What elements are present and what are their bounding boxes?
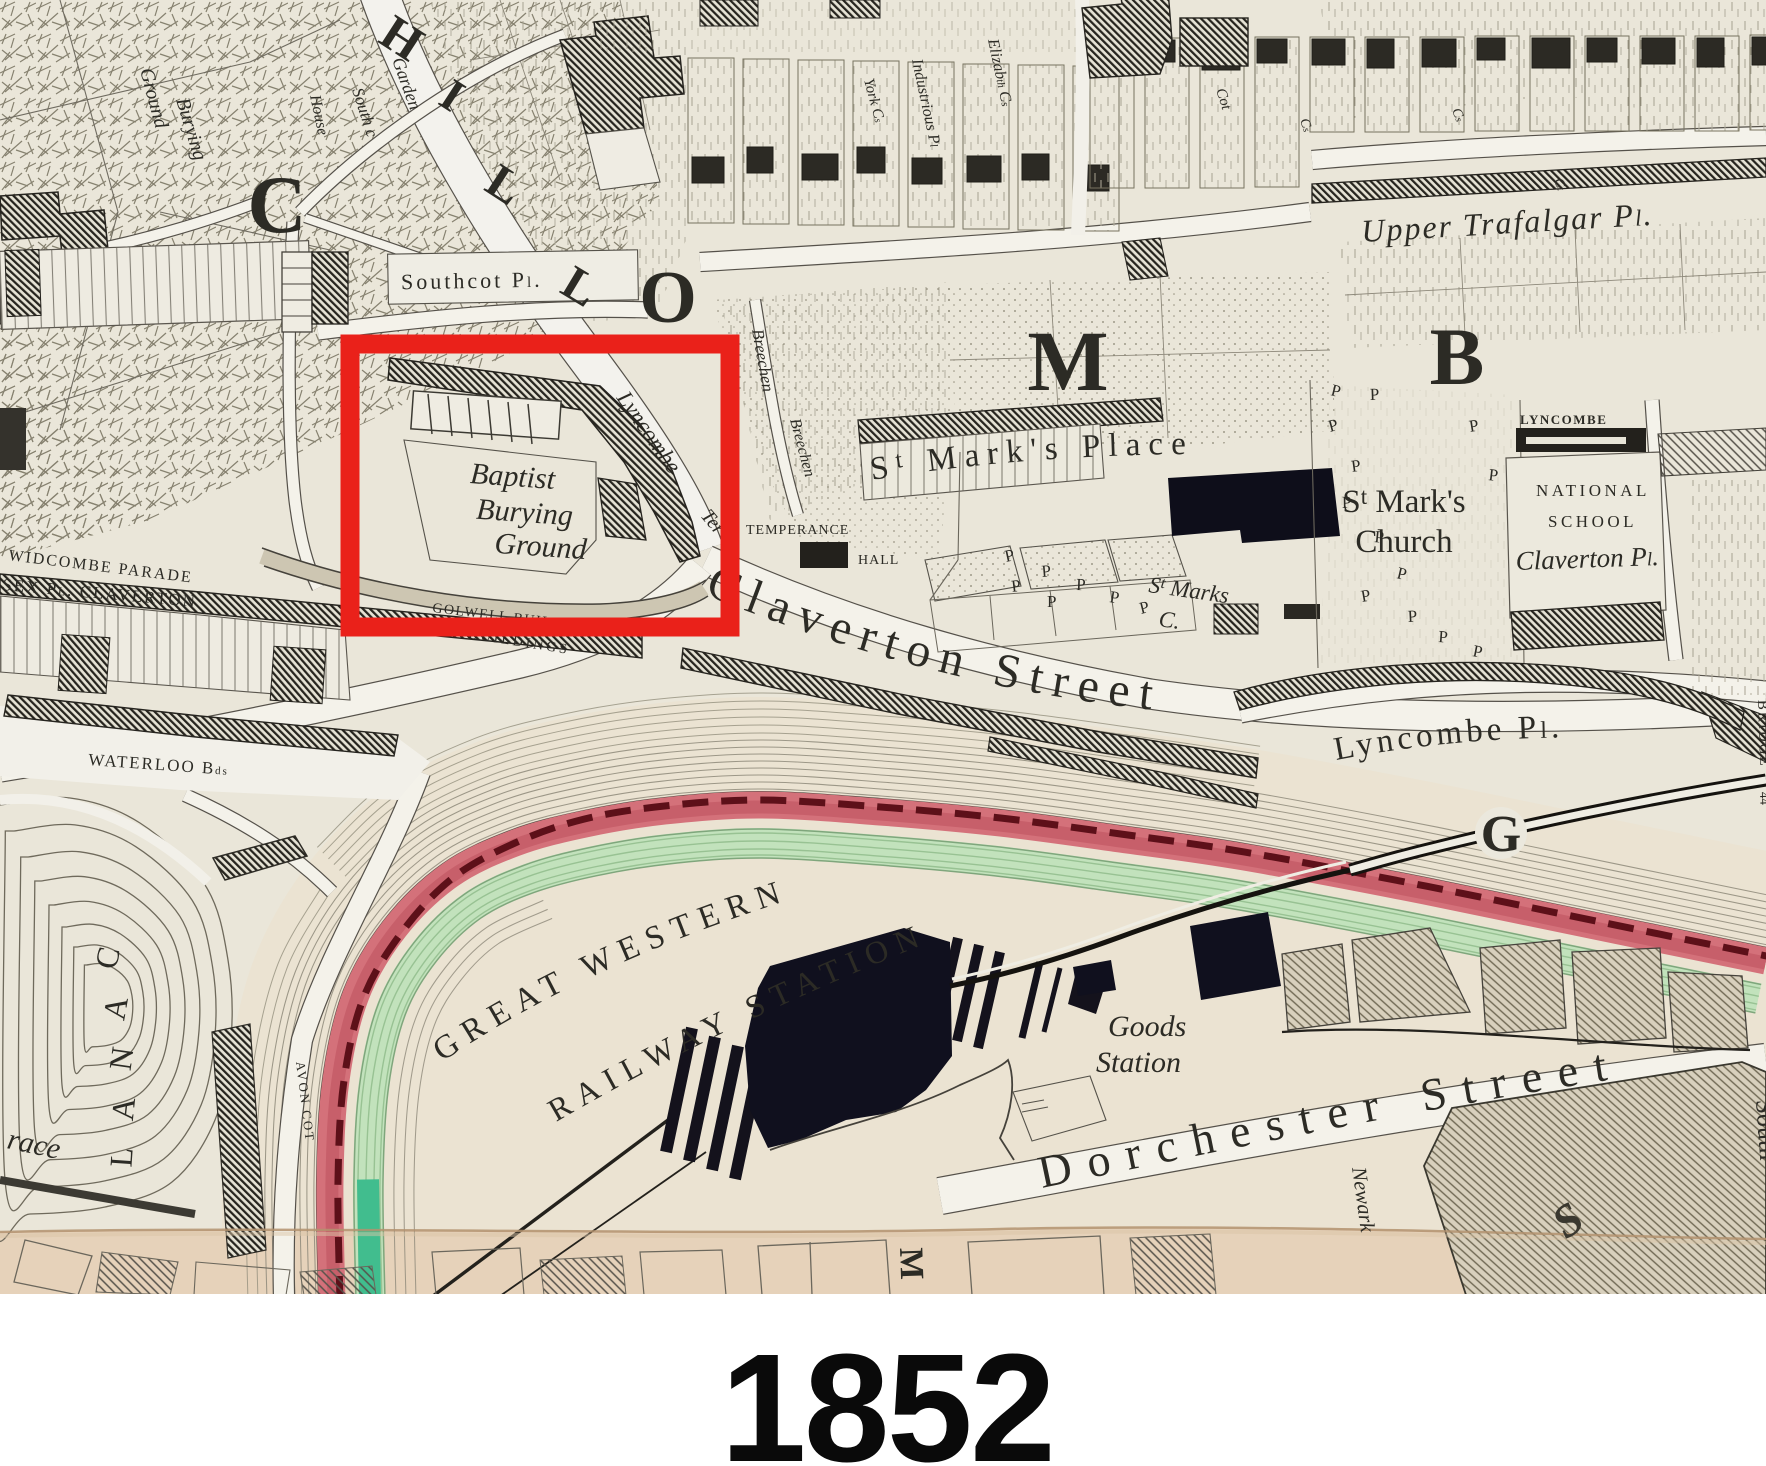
svg-text:Goods: Goods — [1108, 1010, 1186, 1043]
svg-text:Church: Church — [1355, 524, 1453, 560]
svg-text:A: A — [104, 1095, 142, 1122]
svg-text:44: 44 — [1757, 792, 1766, 806]
svg-text:P: P — [1041, 561, 1052, 581]
svg-text:Southcot Pl.: Southcot Pl. — [401, 267, 543, 294]
svg-text:HALL: HALL — [858, 553, 899, 568]
svg-text:P: P — [1076, 575, 1086, 594]
svg-text:M: M — [892, 1247, 930, 1280]
svg-text:N: N — [102, 1045, 141, 1073]
svg-text:P: P — [1047, 592, 1056, 611]
svg-text:Burying: Burying — [475, 493, 574, 533]
svg-text:SCHOOL: SCHOOL — [1548, 512, 1637, 531]
svg-text:1852: 1852 — [721, 1322, 1054, 1466]
svg-text:C: C — [247, 159, 306, 250]
svg-text:C.: C. — [1157, 606, 1181, 634]
svg-text:NATIONAL: NATIONAL — [1536, 481, 1650, 500]
svg-text:P: P — [1438, 627, 1449, 647]
svg-text:G: G — [1481, 806, 1521, 863]
svg-text:B: B — [1430, 311, 1485, 402]
svg-text:Station: Station — [1096, 1046, 1181, 1079]
svg-text:LYNCOMBE: LYNCOMBE — [1520, 412, 1607, 427]
svg-text:O: O — [639, 257, 697, 339]
svg-text:M: M — [1027, 313, 1108, 409]
svg-text:P: P — [1369, 385, 1379, 404]
svg-text:TEMPERANCE: TEMPERANCE — [746, 523, 849, 538]
svg-text:Ground: Ground — [494, 527, 589, 566]
svg-text:Claverton Pl.: Claverton Pl. — [1515, 541, 1659, 576]
svg-text:L: L — [102, 1146, 139, 1168]
svg-text:Baptist: Baptist — [469, 457, 557, 496]
svg-text:P: P — [1407, 607, 1417, 626]
